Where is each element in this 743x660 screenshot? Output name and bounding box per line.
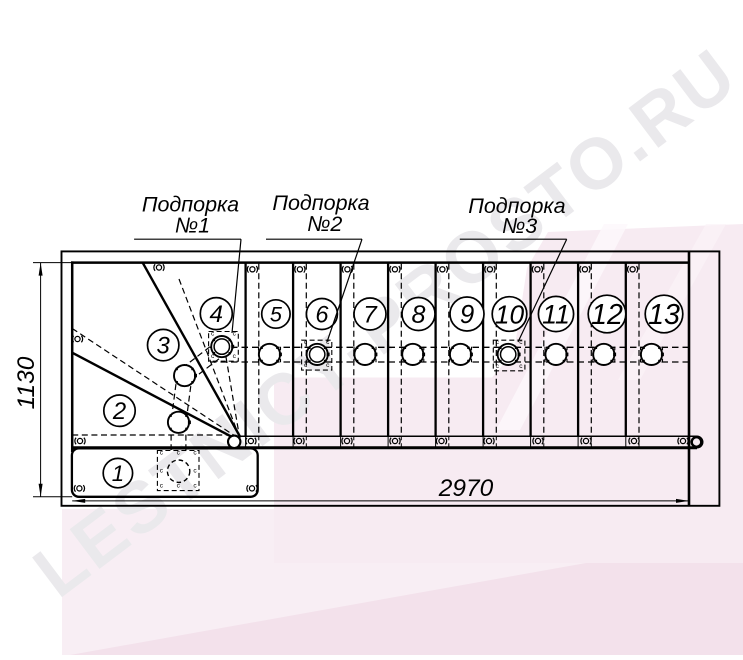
svg-text:1130: 1130: [13, 356, 40, 409]
svg-text:7: 7: [363, 302, 378, 329]
svg-text:10: 10: [495, 299, 525, 329]
svg-text:№1: №1: [175, 213, 210, 237]
svg-text:4: 4: [210, 301, 224, 328]
svg-text:9: 9: [460, 301, 474, 329]
svg-text:13: 13: [648, 299, 680, 331]
svg-text:6: 6: [315, 302, 329, 328]
svg-text:№3: №3: [502, 214, 537, 238]
svg-text:3: 3: [157, 333, 171, 360]
svg-text:12: 12: [591, 299, 623, 331]
svg-text:8: 8: [412, 301, 426, 329]
svg-text:№2: №2: [307, 212, 342, 236]
svg-text:2970: 2970: [438, 475, 494, 502]
svg-text:5: 5: [270, 302, 283, 327]
svg-text:1: 1: [112, 461, 124, 486]
svg-text:11: 11: [542, 300, 570, 330]
svg-text:2: 2: [112, 398, 126, 425]
